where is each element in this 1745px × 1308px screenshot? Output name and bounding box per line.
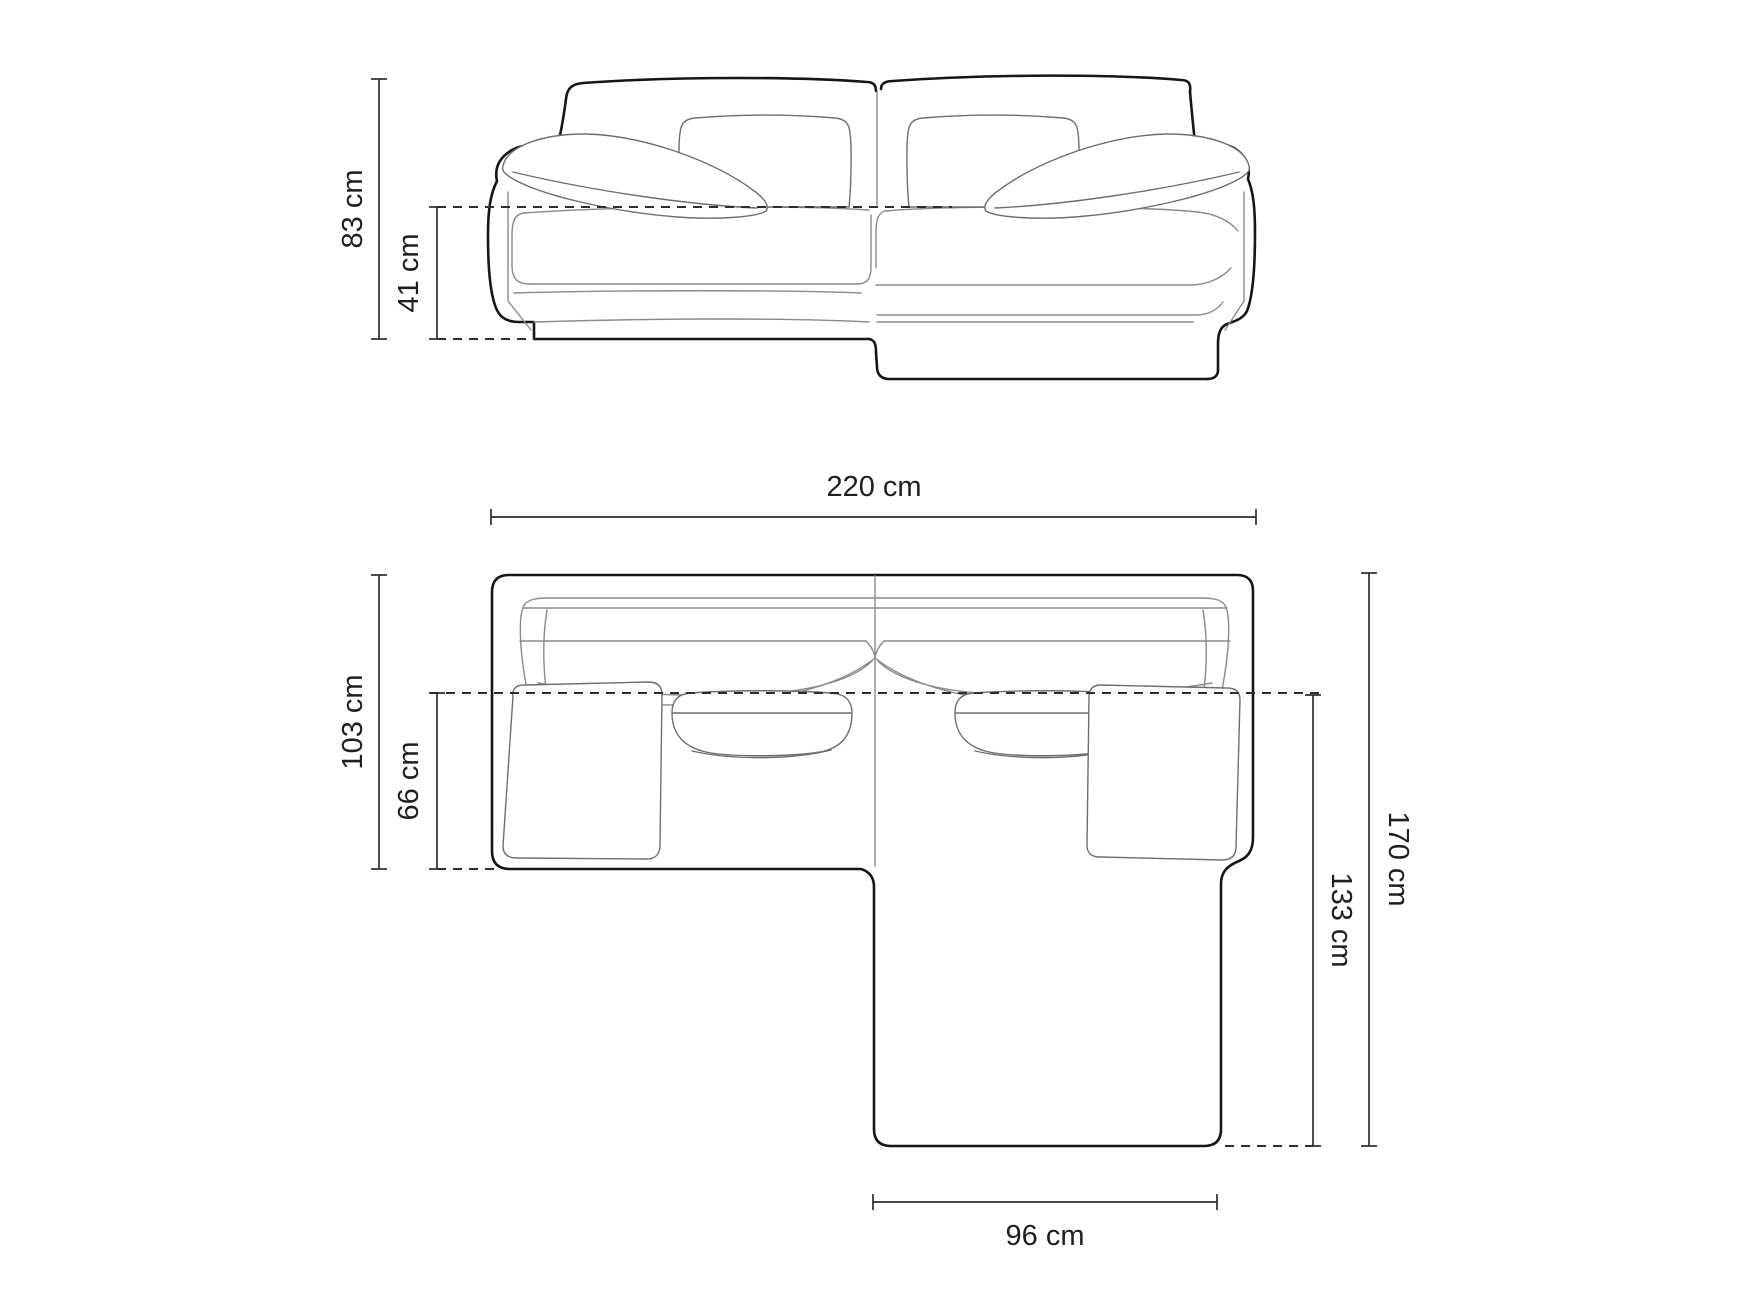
front-left-plinth-top bbox=[534, 319, 869, 322]
label-total-depth: 170 cm bbox=[1382, 811, 1414, 906]
dim-chaise-depth bbox=[1305, 695, 1321, 1146]
dim-total-height bbox=[371, 79, 387, 339]
diagram-svg: 83 cm 41 cm 220 cm 103 cm 66 cm 170 cm 1… bbox=[0, 0, 1745, 1308]
label-seat-height: 41 cm bbox=[393, 234, 425, 313]
front-right-arm-inner bbox=[1225, 192, 1244, 330]
plan-arm-cushion-left bbox=[503, 682, 662, 859]
plan-lumbar-pillow-left bbox=[672, 691, 852, 756]
dim-seat-height bbox=[429, 207, 445, 339]
front-chaise-bottom-outline bbox=[869, 339, 1207, 379]
front-left-seat-seam2 bbox=[514, 291, 861, 293]
front-chaise-seat-side bbox=[876, 211, 885, 268]
front-left-seat-side bbox=[512, 213, 529, 284]
dim-total-depth bbox=[1361, 573, 1377, 1146]
plan-back-cushion-left-side bbox=[544, 610, 547, 690]
dim-total-width bbox=[491, 509, 1256, 525]
label-total-width: 220 cm bbox=[826, 471, 921, 503]
front-backrest-top-right bbox=[881, 76, 1190, 92]
front-chaise-seam2 bbox=[877, 302, 1223, 315]
label-total-height: 83 cm bbox=[337, 170, 369, 249]
sofa-dimension-diagram: 83 cm 41 cm 220 cm 103 cm 66 cm 170 cm 1… bbox=[0, 0, 1745, 1308]
plan-arm-cushion-right bbox=[1087, 685, 1240, 860]
front-chaise-seam1 bbox=[876, 268, 1231, 285]
label-seat-depth: 66 cm bbox=[393, 742, 425, 821]
front-elevation-view bbox=[488, 76, 1255, 379]
label-chaise-width: 96 cm bbox=[1006, 1220, 1085, 1252]
front-left-seat-seam1 bbox=[529, 215, 871, 284]
plan-view bbox=[492, 575, 1253, 1146]
dim-seat-depth bbox=[429, 693, 445, 869]
label-chaise-depth: 133 cm bbox=[1325, 872, 1357, 967]
plan-back-cushion-right-side bbox=[1203, 610, 1206, 690]
label-body-depth: 103 cm bbox=[337, 674, 369, 769]
dim-chaise-width bbox=[873, 1194, 1217, 1210]
dim-body-depth bbox=[371, 575, 387, 869]
front-backrest-top-left bbox=[566, 78, 876, 99]
